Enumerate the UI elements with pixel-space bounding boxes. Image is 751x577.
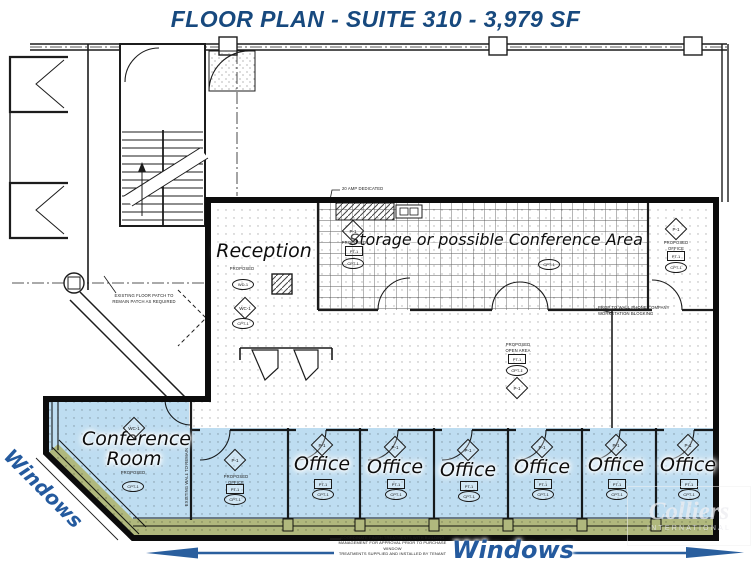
reception-column [272,274,292,294]
note-proposed-reception: PROPOSED [222,266,262,272]
tag-label: P-1 [609,438,623,452]
tag-label: P-1 [346,224,360,238]
finish-tag-box-office-3: PT-1 [460,481,478,491]
note-existing-wall: EXISTING WALL TO REMAIN [184,442,190,512]
tag-label: WC-1 [238,301,252,315]
elevators [10,57,68,238]
watermark: Colliers INTERNATIONAL [627,486,751,546]
finish-tag-oval-storage: CPT-1 [342,258,364,269]
note-window-treatment: COORDINATE FINISH TREATMENTS WITH BUILDI… [330,535,455,557]
finish-tag-box-office-2: PT-1 [387,479,405,489]
room-label-office-1: Office [287,455,357,475]
room-label-storage: Storage or possible Conference Area [346,232,646,249]
finish-tag-box-storage: PT-1 [345,246,363,256]
core-stairs [120,44,208,226]
tag-label: P-1 [535,440,549,454]
tag-label: P-1 [461,443,475,457]
finish-tag-oval-open-area: CPT-1 [506,365,528,376]
tag-label: P-1 [681,438,695,452]
finish-tag-oval-office-4: CPT-1 [532,489,554,500]
tag-label: P-1 [315,438,329,452]
tag-label: P-1 [228,453,242,467]
finish-tag-oval-reception-wd: WD-1 [232,279,254,290]
room-label-office-3: Office [433,461,503,481]
finish-tag-oval-office-5: CPT-1 [606,489,628,500]
finish-tag-oval-conference: CPT-1 [122,481,144,492]
room-label-reception: Reception [214,242,314,262]
finish-tag-box-office-4: PT-1 [534,479,552,489]
room-label-office-5: Office [581,456,651,476]
note-phone: PROP TO WALL PHONE COMPANY WORKSTATION B… [598,305,710,316]
finish-tag-box-ne-office: PT-1 [667,251,685,261]
finish-tag-box-sw-office: PT-1 [226,484,244,494]
tag-label: P-1 [510,381,524,395]
note-proposed-office-ne: PROPOSED OFFICE [656,240,696,251]
floor-plan-page: FLOOR PLAN - SUITE 310 - 3,979 SF [0,0,751,577]
finish-tag-oval-office-2: CPT-1 [385,489,407,500]
finish-tag-box-office-1: PT-1 [314,479,332,489]
finish-tag-oval-office-1: CPT-1 [312,489,334,500]
note-dedicated-circuit: 20 AMP DEDICATED [342,186,402,192]
room-label-office-2: Office [360,458,430,478]
watermark-brand: Colliers [649,499,730,524]
windows-label-bottom: Windows [452,536,574,564]
tag-label: P-1 [388,440,402,454]
note-proposed-conference: PROPOSED [114,470,152,476]
finish-tag-oval-storage-2: CPT-1 [538,259,560,270]
room-label-office-4: Office [507,458,577,478]
finish-tag-oval-reception-cpt: CPT-1 [232,318,254,329]
room-label-office-6: Office [653,456,723,476]
tag-label: WC-1 [127,421,141,435]
note-open-area: PROPOSED OPEN AREA [498,342,538,353]
finish-tag-box-office-5: PT-1 [608,479,626,489]
note-floor-patch: EXISTING FLOOR PATCH TO REMAIN PATCH AS … [112,293,176,304]
tag-label: P-1 [669,222,683,236]
finish-tag-oval-sw-office: CPT-1 [224,494,246,505]
finish-tag-oval-office-3: CPT-1 [458,491,480,502]
finish-tag-box-open-area: PT-1 [508,354,526,364]
finish-tag-oval-ne-office: CPT-1 [665,262,687,273]
watermark-sub: INTERNATIONAL [647,524,731,534]
